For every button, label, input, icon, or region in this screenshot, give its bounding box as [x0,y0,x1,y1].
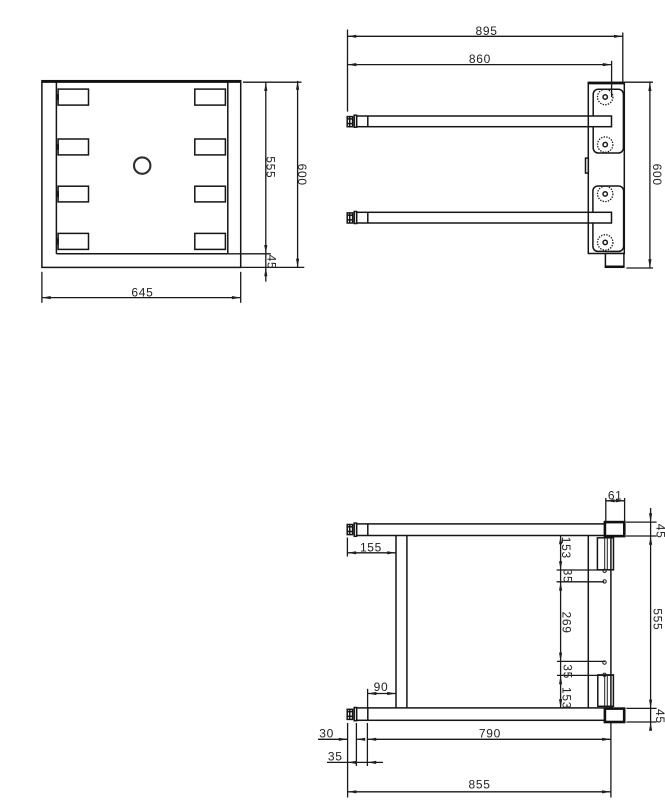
svg-text:35: 35 [561,569,575,584]
svg-text:90: 90 [374,680,389,694]
svg-text:790: 790 [479,726,501,740]
svg-text:600: 600 [295,164,309,186]
svg-text:600: 600 [650,164,664,186]
svg-text:855: 855 [469,778,491,792]
svg-text:860: 860 [469,52,491,66]
svg-text:155: 155 [360,540,382,554]
svg-text:153: 153 [559,537,573,559]
svg-text:35: 35 [561,664,575,679]
svg-text:153: 153 [559,687,573,709]
svg-text:645: 645 [131,285,153,299]
svg-text:30: 30 [319,726,334,740]
svg-text:555: 555 [650,608,664,630]
svg-text:555: 555 [264,156,278,178]
svg-text:895: 895 [476,24,498,38]
svg-text:45: 45 [653,709,665,724]
svg-text:269: 269 [559,612,573,634]
svg-text:35: 35 [328,749,343,763]
svg-text:61: 61 [608,489,623,503]
svg-text:45: 45 [653,524,665,539]
svg-text:45: 45 [265,255,279,270]
